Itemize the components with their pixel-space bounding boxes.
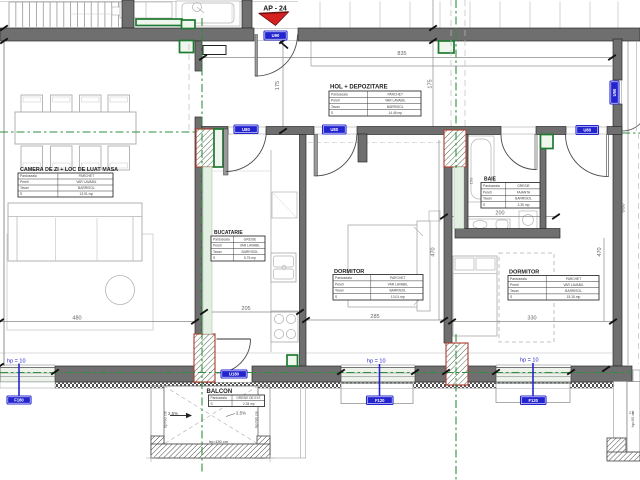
- svg-text:BUCATARIE: BUCATARIE: [214, 230, 243, 236]
- svg-text:PARCHET: PARCHET: [79, 174, 95, 178]
- svg-text:13.01 mp: 13.01 mp: [391, 295, 405, 299]
- svg-text:Pereti: Pereti: [335, 282, 344, 286]
- svg-text:13.91 mp: 13.91 mp: [80, 192, 94, 196]
- svg-text:BAIE: BAIE: [484, 177, 497, 183]
- svg-text:Tavan: Tavan: [335, 289, 344, 293]
- svg-text:PARCHET: PARCHET: [387, 92, 403, 96]
- svg-text:hp=150 cm: hp=150 cm: [209, 440, 228, 444]
- svg-text:U80: U80: [242, 127, 250, 132]
- svg-text:U180: U180: [229, 372, 240, 377]
- svg-text:BARRISOL: BARRISOL: [387, 105, 404, 109]
- svg-text:330: 330: [527, 316, 536, 322]
- svg-text:Pardoseala: Pardoseala: [483, 184, 500, 188]
- svg-text:Tavan: Tavan: [331, 105, 340, 109]
- svg-text:2.5: 2.5: [629, 411, 634, 415]
- svg-text:Pereti: Pereti: [20, 180, 29, 184]
- svg-text:F180: F180: [14, 398, 24, 403]
- svg-text:175: 175: [428, 79, 434, 88]
- svg-text:VAR LAVABIL: VAR LAVABIL: [385, 99, 406, 103]
- svg-text:U90: U90: [272, 33, 280, 38]
- svg-text:Tavan: Tavan: [213, 250, 222, 254]
- svg-text:15.15 mp: 15.15 mp: [567, 295, 581, 299]
- svg-text:470: 470: [597, 247, 603, 256]
- svg-text:Tavan: Tavan: [510, 289, 519, 293]
- svg-text:835: 835: [397, 51, 406, 57]
- svg-text:VAR LAVABIL: VAR LAVABIL: [76, 180, 97, 184]
- svg-text:660: 660: [621, 203, 627, 212]
- svg-text:Tavan: Tavan: [20, 186, 29, 190]
- svg-text:5.75 mp: 5.75 mp: [244, 256, 256, 260]
- svg-text:hp=90 cm: hp=90 cm: [164, 411, 168, 428]
- svg-text:Pardoseala: Pardoseala: [335, 276, 352, 280]
- svg-text:Pardoseala: Pardoseala: [211, 396, 227, 400]
- svg-text:BALCON: BALCON: [207, 389, 233, 395]
- svg-text:Pardoseala: Pardoseala: [331, 92, 348, 96]
- svg-text:AP - 24: AP - 24: [263, 6, 287, 13]
- svg-text:CAMERA DE ZI + LOC DE LUAT MA: CAMERA DE ZI + LOC DE LUAT MASA: [20, 167, 118, 173]
- svg-text:PARCHET: PARCHET: [390, 276, 406, 280]
- svg-text:U90: U90: [612, 88, 617, 96]
- svg-text:F120: F120: [375, 398, 385, 403]
- svg-text:hp=90 cm: hp=90 cm: [255, 411, 259, 428]
- svg-text:VAR LAVABIL: VAR LAVABIL: [388, 282, 409, 286]
- svg-text:Pardoseala: Pardoseala: [20, 174, 37, 178]
- svg-text:F120: F120: [528, 398, 538, 403]
- svg-text:U80: U80: [330, 127, 338, 132]
- svg-text:2.5%: 2.5%: [236, 410, 246, 415]
- svg-text:150: 150: [469, 177, 474, 184]
- svg-text:FAIANTA: FAIANTA: [517, 190, 531, 194]
- svg-text:GRESIE: GRESIE: [244, 237, 257, 241]
- svg-text:Pereti: Pereti: [483, 190, 492, 194]
- svg-text:BARRISOL: BARRISOL: [515, 197, 532, 201]
- svg-text:BARRISOL: BARRISOL: [78, 186, 95, 190]
- svg-text:Pardoseala: Pardoseala: [213, 237, 230, 241]
- svg-text:Pereti: Pereti: [510, 283, 519, 287]
- svg-text:Pereti: Pereti: [213, 244, 222, 248]
- svg-text:2.34 mp: 2.34 mp: [243, 402, 255, 406]
- svg-text:VAR LAVABIL: VAR LAVABIL: [240, 244, 261, 248]
- svg-text:Pardoseala: Pardoseala: [510, 277, 527, 281]
- svg-text:hp = 10: hp = 10: [367, 359, 386, 365]
- svg-text:175: 175: [275, 81, 281, 90]
- svg-text:U80: U80: [583, 128, 591, 133]
- svg-text:DORMITOR: DORMITOR: [509, 270, 539, 276]
- svg-text:PARCHET: PARCHET: [566, 277, 582, 281]
- svg-text:470: 470: [431, 247, 437, 256]
- svg-text:200: 200: [495, 211, 504, 217]
- svg-text:BARRISOL: BARRISOL: [565, 289, 582, 293]
- svg-text:3.35 mp: 3.35 mp: [518, 203, 530, 207]
- svg-text:VAR LAVABIL: VAR LAVABIL: [563, 283, 584, 287]
- svg-text:480: 480: [72, 316, 81, 322]
- svg-text:2.5%: 2.5%: [168, 411, 178, 416]
- svg-text:205: 205: [241, 306, 250, 312]
- svg-text:BARRISOL: BARRISOL: [389, 289, 406, 293]
- svg-text:HOL + DEPOZITARE: HOL + DEPOZITARE: [330, 85, 388, 91]
- svg-text:14.46 mp: 14.46 mp: [388, 111, 402, 115]
- svg-text:GRESIE: GRESIE: [517, 184, 530, 188]
- svg-text:285: 285: [370, 314, 379, 320]
- svg-text:Tavan: Tavan: [483, 197, 492, 201]
- svg-text:S: S: [211, 402, 213, 406]
- svg-text:Pereti: Pereti: [331, 99, 340, 103]
- svg-text:GRESIE DE EXT.: GRESIE DE EXT.: [236, 396, 261, 400]
- svg-text:BARRISOL: BARRISOL: [242, 250, 259, 254]
- svg-text:hp = 10: hp = 10: [7, 359, 26, 365]
- svg-text:hp = 10: hp = 10: [520, 358, 539, 364]
